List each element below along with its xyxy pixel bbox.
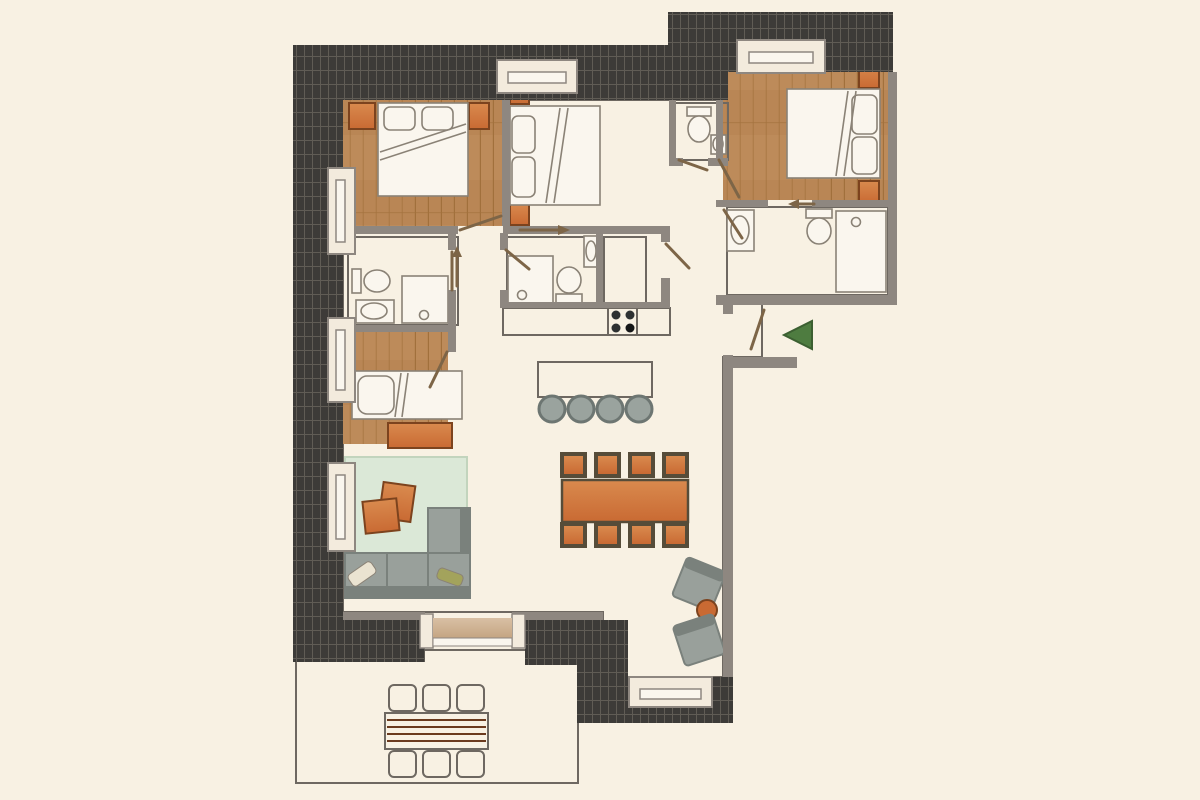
- window-top-middle-bedroom: [497, 60, 577, 93]
- bathroom-left: [352, 269, 448, 323]
- door-sill: [433, 638, 512, 646]
- pillow: [422, 107, 453, 130]
- outdoor-chair: [389, 751, 416, 777]
- wall-entry: [723, 357, 797, 368]
- dining-area: [560, 452, 689, 548]
- outdoor-dining-set: [385, 685, 488, 777]
- kitchen-island: [538, 362, 652, 397]
- burner: [626, 324, 635, 333]
- nightstand: [349, 103, 375, 129]
- window-top-right-bedroom: [737, 40, 825, 73]
- wall: [661, 226, 670, 242]
- outdoor-chair: [457, 685, 484, 711]
- wall: [500, 302, 670, 308]
- outdoor-chair: [423, 685, 450, 711]
- wall: [716, 200, 768, 207]
- threshold: [433, 618, 512, 640]
- pillow: [512, 157, 535, 197]
- wall: [500, 233, 508, 250]
- toilet-bowl: [807, 218, 831, 244]
- wall: [448, 332, 456, 352]
- dining-chairs-top: [560, 452, 689, 478]
- pillow: [358, 376, 394, 414]
- outdoor-table: [385, 713, 488, 749]
- toilet-tank: [687, 107, 711, 116]
- nightstand: [469, 103, 489, 129]
- entrance: [784, 321, 812, 349]
- door-leaf-wc: [679, 160, 707, 170]
- living-room: [345, 457, 470, 598]
- counter-end: [637, 308, 670, 335]
- outdoor-chair: [457, 751, 484, 777]
- burner: [612, 324, 621, 333]
- pillow: [512, 116, 535, 153]
- chaise-back: [460, 508, 470, 556]
- hatch-terrace-left: [343, 620, 425, 662]
- outdoor-chair: [423, 751, 450, 777]
- armchair-corner: [672, 557, 727, 667]
- window-left-bedroom: [328, 168, 355, 254]
- dining-chair: [560, 452, 587, 478]
- bedroom-top-middle: [510, 88, 600, 225]
- shower: [508, 256, 553, 303]
- coffee-table: [362, 498, 399, 533]
- kitchen-counter: [503, 308, 608, 335]
- terrace-door: [420, 614, 525, 648]
- wall: [812, 200, 897, 207]
- wall: [723, 305, 733, 314]
- wall: [502, 100, 510, 226]
- wall: [669, 100, 676, 162]
- door-leaf-closet: [666, 244, 689, 268]
- wall: [343, 226, 458, 234]
- floor-plan-canvas: [0, 0, 1200, 800]
- dining-chair: [560, 522, 587, 548]
- pillow: [384, 107, 415, 130]
- window-left-single-bedroom: [328, 318, 355, 402]
- dining-chair: [628, 522, 655, 548]
- wardrobe: [604, 237, 646, 303]
- stool: [597, 396, 623, 422]
- wall: [343, 612, 425, 620]
- window-left-living: [328, 463, 355, 551]
- nightstand: [859, 181, 879, 203]
- door-jamb: [420, 614, 433, 648]
- outdoor-chair: [389, 685, 416, 711]
- shower: [402, 276, 448, 323]
- dresser: [388, 423, 452, 448]
- dining-chair: [594, 452, 621, 478]
- bar-stools: [539, 396, 652, 422]
- burner: [626, 311, 635, 320]
- dining-table: [562, 480, 688, 522]
- wall-exterior-right-lower: [723, 355, 733, 677]
- toilet-bowl: [688, 116, 710, 142]
- toilet-bowl: [557, 267, 581, 293]
- dining-chairs-bottom: [560, 522, 689, 548]
- wall-exterior-right: [888, 72, 897, 305]
- door-jamb: [512, 614, 525, 648]
- wall: [448, 233, 456, 250]
- window-bottom-dining: [629, 677, 712, 707]
- wall: [716, 100, 723, 158]
- terrace: [296, 650, 578, 783]
- armchair: [673, 614, 726, 667]
- burner: [612, 311, 621, 320]
- wall: [661, 278, 670, 306]
- kitchen: [503, 308, 670, 422]
- toilet-tank: [806, 209, 832, 218]
- entrance-arrow-icon: [784, 321, 812, 349]
- stool: [568, 396, 594, 422]
- sofa-back: [345, 586, 470, 598]
- stool: [626, 396, 652, 422]
- toilet-tank: [352, 269, 361, 293]
- terrace-floor: [296, 650, 578, 783]
- toilet-bowl: [364, 270, 390, 292]
- wall: [716, 295, 897, 305]
- wall: [596, 233, 603, 303]
- stool: [539, 396, 565, 422]
- toilet-tank: [556, 294, 582, 303]
- dining-chair: [662, 522, 689, 548]
- dining-chair: [594, 522, 621, 548]
- dining-chair: [662, 452, 689, 478]
- dining-chair: [628, 452, 655, 478]
- pillow: [852, 137, 877, 174]
- pillow: [852, 95, 877, 134]
- closet: [604, 237, 646, 303]
- nightstand: [510, 204, 529, 225]
- bathroom-center: [508, 236, 599, 303]
- bathroom-right: [727, 209, 886, 292]
- floor-plan: [0, 0, 1200, 800]
- wall: [343, 325, 456, 332]
